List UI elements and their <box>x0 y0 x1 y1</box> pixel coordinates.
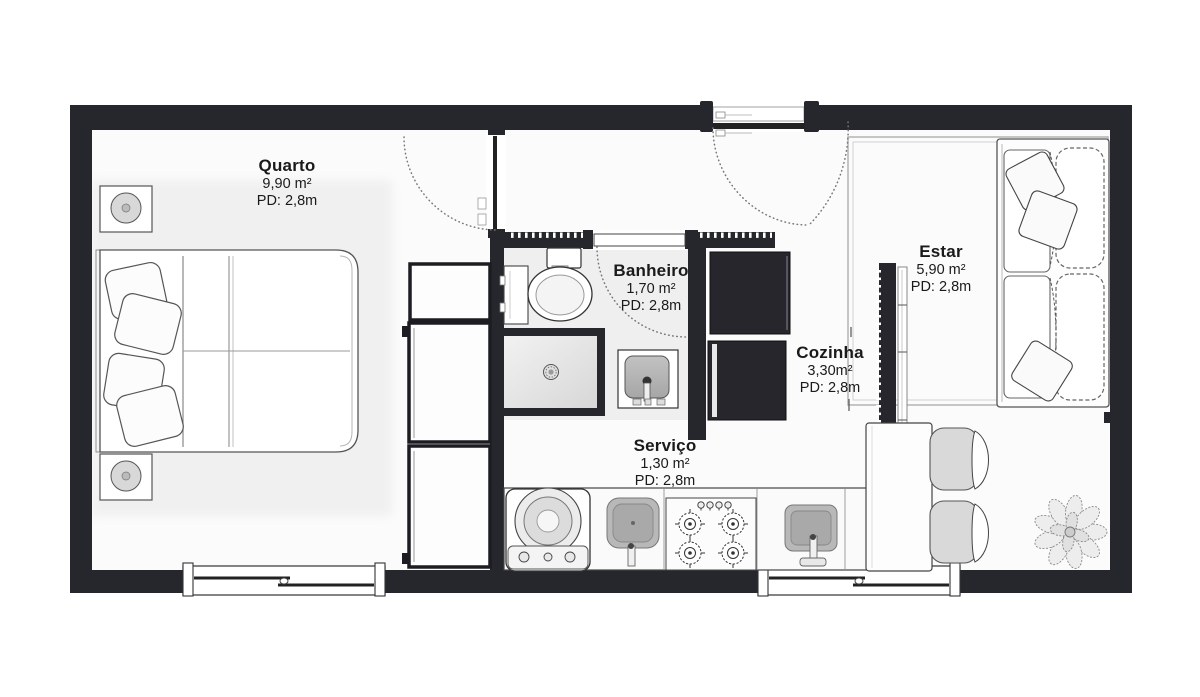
dining-table <box>866 423 932 571</box>
divider-panel <box>876 263 907 432</box>
room-name: Estar <box>911 242 971 262</box>
shower-wall-bottom <box>504 408 605 416</box>
floor-plan: Quarto 9,90 m² PD: 2,8m Banheiro 1,70 m²… <box>0 0 1200 697</box>
chair <box>930 501 989 563</box>
room-area: 1,70 m² <box>613 281 688 298</box>
wall-right <box>1110 105 1132 593</box>
shower-wall-top <box>504 328 605 336</box>
room-label-servico: Serviço 1,30 m² PD: 2,8m <box>634 436 697 490</box>
sofa <box>997 139 1109 407</box>
room-area: 5,90 m² <box>911 262 971 279</box>
chair <box>930 428 989 490</box>
wall-top <box>70 105 1132 130</box>
wall-nub <box>1104 412 1112 423</box>
room-area: 3,30m² <box>796 363 864 380</box>
nightstand-bottom <box>100 454 152 500</box>
wall-cozinha <box>688 232 706 440</box>
window-quarto <box>183 563 385 596</box>
nightstand-top <box>100 186 152 232</box>
room-name: Quarto <box>257 156 317 176</box>
double-bed <box>96 250 358 452</box>
room-ceiling-height: PD: 2,8m <box>634 473 697 490</box>
washbasin <box>618 350 678 408</box>
room-label-quarto: Quarto 9,90 m² PD: 2,8m <box>257 156 317 210</box>
room-ceiling-height: PD: 2,8m <box>911 279 971 296</box>
cooktop <box>666 498 756 570</box>
cabinet <box>708 341 786 420</box>
banheiro-door-leaf <box>594 234 685 246</box>
faucet <box>644 383 650 401</box>
room-name: Serviço <box>634 436 697 456</box>
bath-shelf <box>500 266 528 324</box>
room-label-cozinha: Cozinha 3,30m² PD: 2,8m <box>796 343 864 397</box>
room-name: Cozinha <box>796 343 864 363</box>
wall-left <box>70 105 92 593</box>
shower-wall-right <box>597 328 605 416</box>
room-area: 1,30 m² <box>634 456 697 473</box>
shower <box>504 336 597 408</box>
quarto-door-leaf <box>493 136 497 229</box>
wardrobe <box>402 264 490 567</box>
room-label-estar: Estar 5,90 m² PD: 2,8m <box>911 242 971 296</box>
faucet <box>628 546 635 566</box>
room-label-banheiro: Banheiro 1,70 m² PD: 2,8m <box>613 261 688 315</box>
room-ceiling-height: PD: 2,8m <box>257 193 317 210</box>
entry-door-leaf <box>713 123 805 129</box>
room-name: Banheiro <box>613 261 688 281</box>
room-ceiling-height: PD: 2,8m <box>796 380 864 397</box>
washing-machine <box>506 488 590 571</box>
room-area: 9,90 m² <box>257 176 317 193</box>
refrigerator <box>710 252 790 334</box>
plan-drawing <box>0 0 1200 697</box>
room-ceiling-height: PD: 2,8m <box>613 298 688 315</box>
